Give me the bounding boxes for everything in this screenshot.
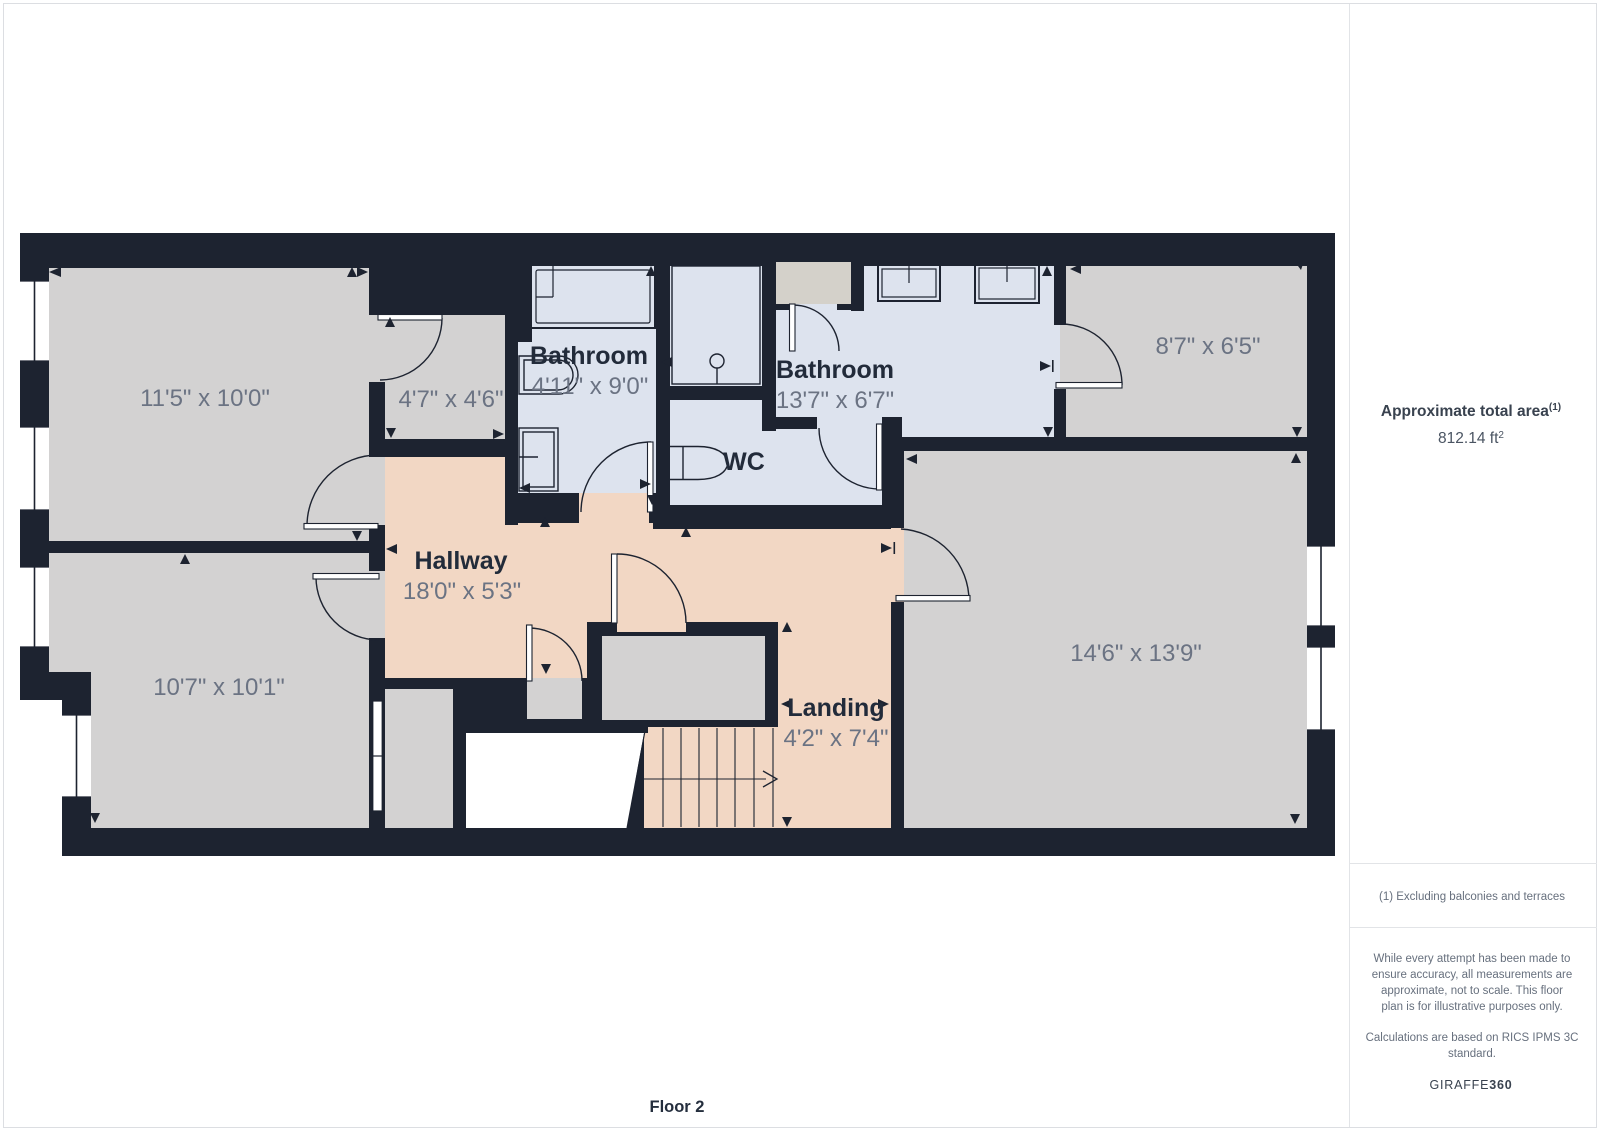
svg-text:GIRAFFE360: GIRAFFE360 [1429, 1078, 1512, 1092]
svg-text:10'7" x 10'1": 10'7" x 10'1" [153, 674, 285, 701]
svg-text:Bathroom: Bathroom [530, 342, 648, 370]
svg-text:14'6" x 13'9": 14'6" x 13'9" [1070, 640, 1202, 667]
svg-text:18'0" x 5'3": 18'0" x 5'3" [403, 578, 521, 605]
svg-text:approximate, not to scale. Thi: approximate, not to scale. This floor [1381, 985, 1563, 997]
svg-text:13'7" x 6'7": 13'7" x 6'7" [776, 387, 894, 414]
svg-text:While every attempt has been m: While every attempt has been made to [1374, 953, 1571, 965]
svg-text:Hallway: Hallway [414, 547, 507, 575]
svg-text:8'7" x 6'5": 8'7" x 6'5" [1156, 333, 1261, 360]
svg-text:Landing: Landing [787, 694, 884, 722]
svg-text:(1) Excluding balconies and te: (1) Excluding balconies and terraces [1379, 891, 1565, 903]
svg-text:4'2" x 7'4": 4'2" x 7'4" [784, 725, 889, 752]
svg-text:4'7" x 4'6": 4'7" x 4'6" [399, 386, 504, 413]
svg-text:WC: WC [723, 448, 765, 476]
svg-text:Approximate total area(1): Approximate total area(1) [1381, 402, 1561, 420]
svg-text:standard.: standard. [1448, 1048, 1496, 1060]
svg-text:plan is for illustrative purpo: plan is for illustrative purposes only. [1381, 1001, 1562, 1013]
svg-text:Calculations are based on RICS: Calculations are based on RICS IPMS 3C [1366, 1032, 1579, 1044]
svg-text:11'5" x 10'0": 11'5" x 10'0" [140, 385, 270, 412]
svg-text:4'11" x 9'0": 4'11" x 9'0" [532, 373, 649, 400]
svg-text:ensure accuracy, all measureme: ensure accuracy, all measurements are [1372, 969, 1573, 981]
svg-text:812.14 ft2: 812.14 ft2 [1438, 430, 1504, 447]
svg-text:Bathroom: Bathroom [776, 356, 894, 384]
svg-text:Floor 2: Floor 2 [649, 1098, 704, 1116]
